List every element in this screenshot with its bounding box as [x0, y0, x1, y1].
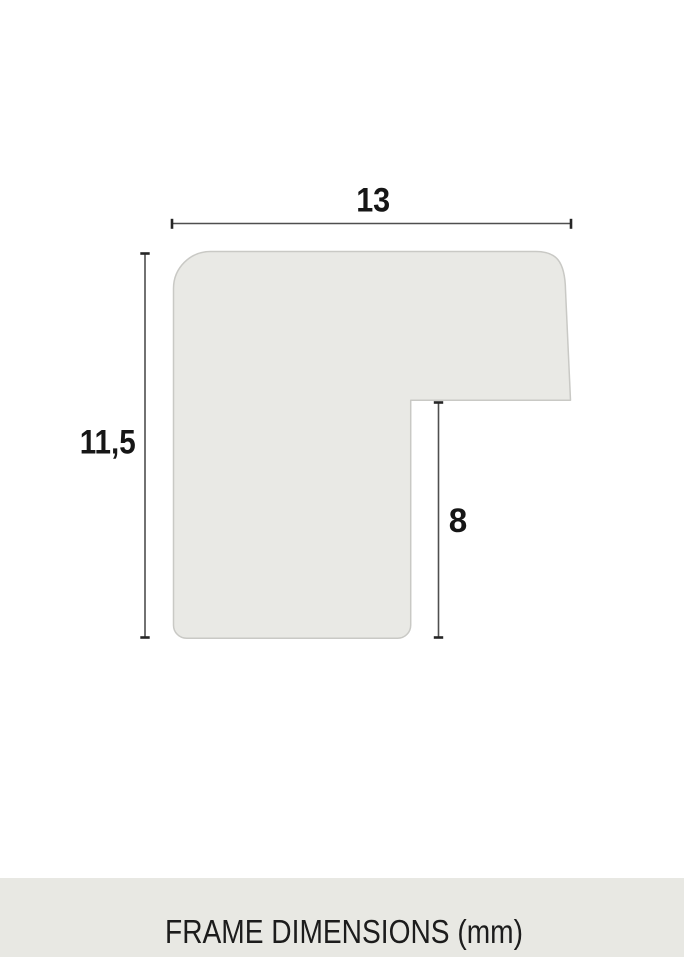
svg-text:8: 8	[449, 502, 468, 540]
svg-text:FRAME DIMENSIONS (mm): FRAME DIMENSIONS (mm)	[165, 913, 523, 950]
svg-text:13: 13	[356, 182, 390, 220]
svg-text:11,5: 11,5	[80, 424, 136, 462]
